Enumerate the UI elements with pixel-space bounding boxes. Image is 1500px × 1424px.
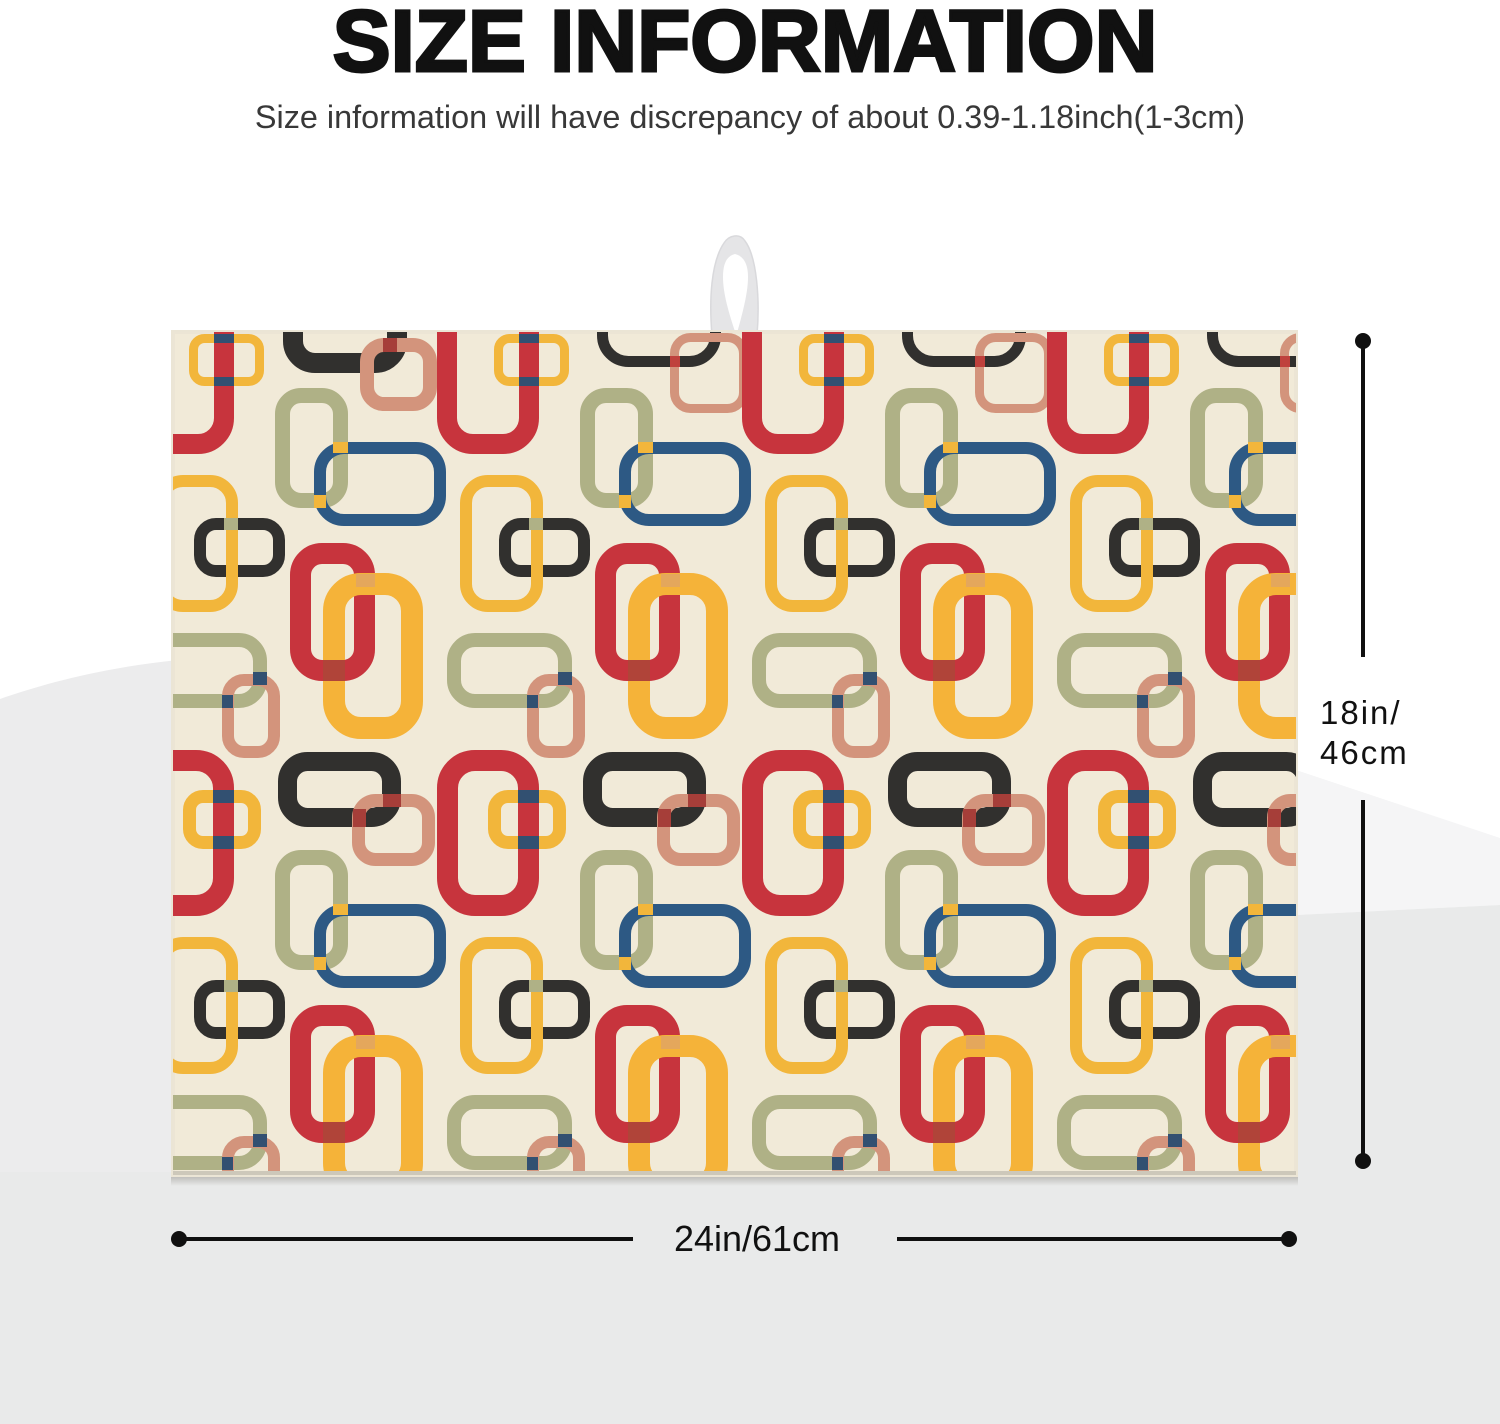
svg-text:46cm: 46cm (1320, 734, 1409, 771)
svg-text:SIZE INFORMATION: SIZE INFORMATION (333, 0, 1158, 90)
svg-text:24in/61cm: 24in/61cm (674, 1218, 840, 1259)
svg-text:Size information will have dis: Size information will have discrepancy o… (255, 99, 1245, 135)
svg-text:18in/: 18in/ (1320, 694, 1402, 731)
